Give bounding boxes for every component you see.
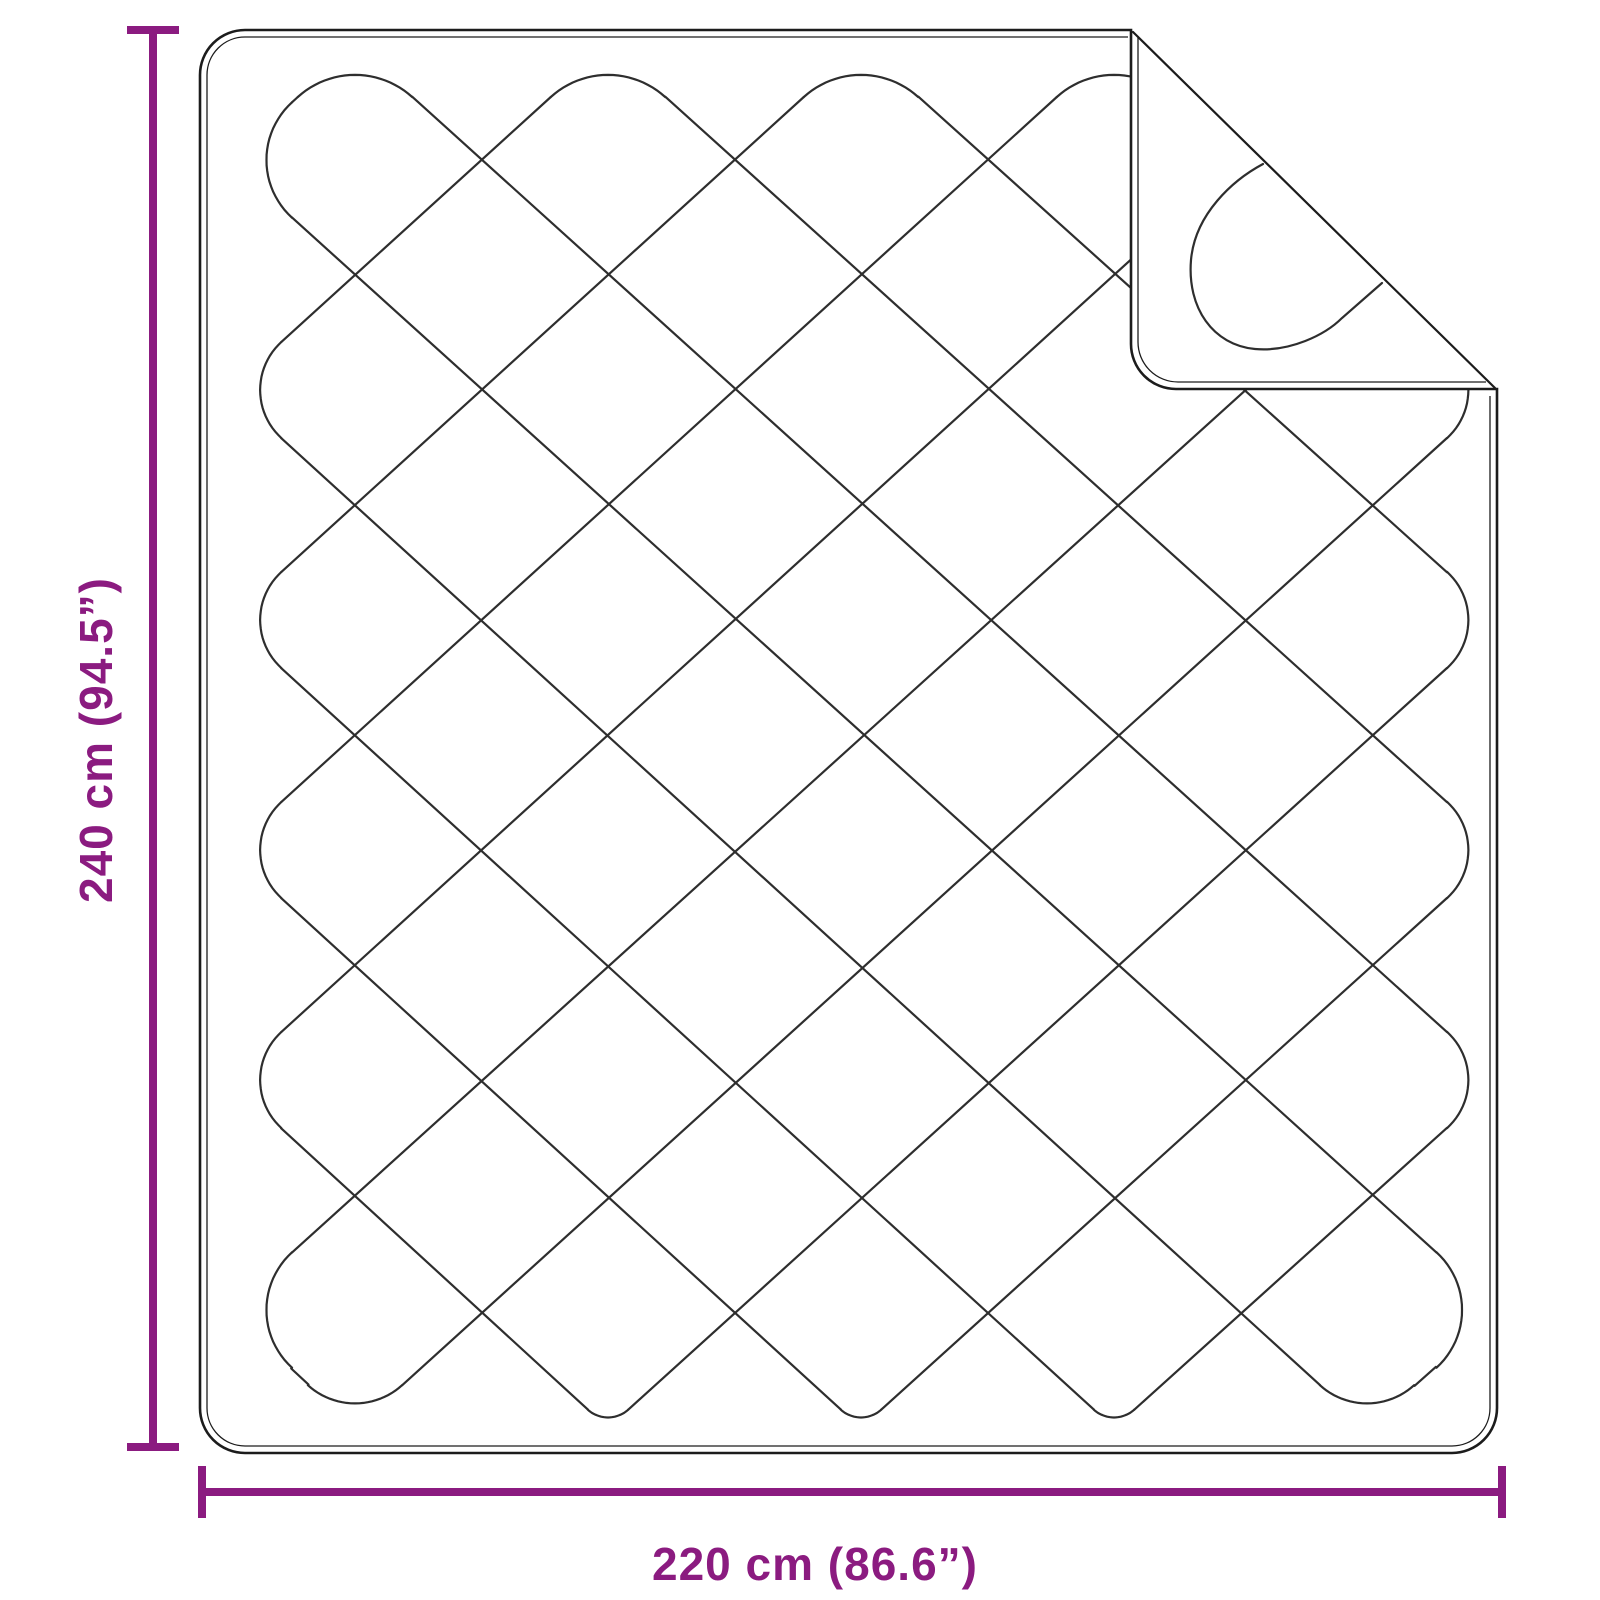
stitch-loop-L3 [260,342,281,438]
width-dimension-line [202,1488,1502,1496]
stitch-loop-L9 [260,1032,281,1128]
stitch-loop-B5 [841,1410,881,1418]
stitch-line-19 [281,1128,588,1409]
stitch-line-20 [291,1369,308,1385]
width-dimension-label: 220 cm (86.6”) [652,1537,978,1591]
stitch-line-11 [1172,97,1447,343]
width-dimension-cap-right [1498,1466,1506,1518]
height-dimension-label: 240 cm (94.5”) [69,577,123,903]
stitch-line-1 [281,97,550,342]
stitch-line-14 [412,97,1447,1032]
stitch-line-6 [402,438,1447,1385]
height-dimension-cap-bottom [127,1443,179,1451]
stitch-loop-B9 [1320,1385,1414,1403]
blanket-piping-inner [207,37,1490,1446]
stitch-line-17 [281,668,1094,1409]
stitch-loop-R9 [1447,1032,1468,1128]
stitch-loop-L5 [260,572,281,668]
width-dimension-cap-left [198,1466,206,1518]
stitch-line-16 [281,438,1320,1385]
quilt-stitch-pattern [260,45,1500,1418]
stitch-loop-L1 [267,102,293,217]
stitch-loop-B3 [588,1410,628,1418]
stitch-line-3 [281,97,1056,802]
stitch-line-5 [292,160,1500,1252]
fold-crease [1133,32,1495,388]
stitch-loop-T1 [298,75,412,97]
flap-stitch-loop [1191,164,1382,349]
stitch-loop-L7 [260,802,281,898]
stitch-line-0 [292,97,298,102]
stitch-loop-L11 [267,1252,293,1367]
stitch-line-13 [665,97,1447,802]
stitch-loop-R7 [1447,802,1468,898]
stitch-loop-R5 [1447,572,1468,668]
stitch-line-10 [1415,1367,1436,1386]
stitch-loop-T7 [1057,75,1171,97]
stitch-line-18 [281,898,841,1409]
height-dimension-line [149,30,157,1447]
stitch-loop-B7 [1094,1410,1134,1418]
height-dimension-cap-top [127,26,179,34]
stitch-line-2 [281,97,803,572]
stitch-loop-T3 [551,75,665,97]
blanket-diagram [0,0,1600,1600]
stitch-line-7 [628,668,1447,1410]
product-dimension-diagram: 240 cm (94.5”) 220 cm (86.6”) [0,0,1600,1600]
stitch-line-9 [1134,1128,1447,1410]
stitch-loop-T5 [804,75,918,97]
stitch-loop-B1 [308,1385,402,1403]
stitch-line-8 [881,898,1447,1410]
stitch-loop-R11 [1437,1252,1463,1367]
blanket-outline [200,30,1497,1453]
stitch-line-12 [918,97,1447,573]
